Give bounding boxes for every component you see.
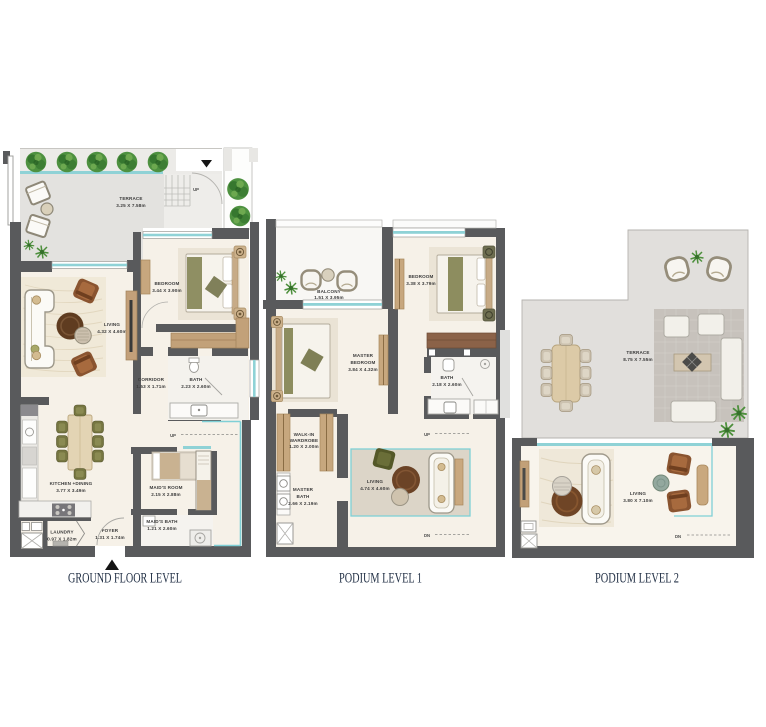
svg-text:KITCHEN +DINING: KITCHEN +DINING	[50, 481, 93, 486]
svg-text:DN: DN	[424, 533, 430, 538]
svg-text:3.44 X 3.90m: 3.44 X 3.90m	[152, 288, 181, 293]
svg-text:3.25 X 7.58m: 3.25 X 7.58m	[116, 203, 145, 208]
svg-text:1.20 X 2.00m: 1.20 X 2.00m	[289, 444, 318, 449]
svg-text:MASTER: MASTER	[353, 353, 374, 358]
svg-text:LIVING: LIVING	[630, 491, 646, 496]
svg-text:GROUND FLOOR LEVEL: GROUND FLOOR LEVEL	[68, 571, 182, 587]
svg-text:BEDROOM: BEDROOM	[408, 274, 433, 279]
svg-text:3.38 X 3.79m: 3.38 X 3.79m	[406, 281, 435, 286]
svg-text:UP: UP	[170, 433, 176, 438]
svg-text:4.74 X 4.60m: 4.74 X 4.60m	[360, 486, 389, 491]
svg-text:BATH: BATH	[440, 375, 454, 380]
svg-text:BATH: BATH	[189, 377, 203, 382]
svg-text:FOYER: FOYER	[102, 528, 119, 533]
svg-text:2.15 X 2.88m: 2.15 X 2.88m	[151, 492, 180, 497]
svg-text:3.80 X 7.10m: 3.80 X 7.10m	[623, 498, 652, 503]
svg-text:MASTER: MASTER	[293, 487, 314, 492]
svg-text:1.21 X 2.60m: 1.21 X 2.60m	[147, 526, 176, 531]
svg-text:1.53 X 1.71m: 1.53 X 1.71m	[136, 384, 165, 389]
svg-text:PODIUM LEVEL 1: PODIUM LEVEL 1	[339, 571, 422, 587]
svg-text:BALCONY: BALCONY	[317, 289, 341, 294]
svg-text:TERRACE: TERRACE	[119, 196, 142, 201]
svg-text:3.84 X 4.32m: 3.84 X 4.32m	[348, 367, 377, 372]
svg-text:BEDROOM: BEDROOM	[154, 281, 179, 286]
svg-text:2.66 X 2.19m: 2.66 X 2.19m	[288, 501, 317, 506]
svg-text:UP: UP	[193, 187, 199, 192]
svg-text:8.75 X 7.55m: 8.75 X 7.55m	[623, 357, 652, 362]
svg-text:DN: DN	[675, 534, 681, 539]
svg-text:CORRIDOR: CORRIDOR	[138, 377, 165, 382]
svg-text:LIVING: LIVING	[104, 322, 120, 327]
svg-text:MAID'S ROOM: MAID'S ROOM	[149, 485, 182, 490]
svg-text:BATH: BATH	[296, 494, 310, 499]
svg-text:WALK-IN: WALK-IN	[294, 432, 315, 437]
svg-text:TERRACE: TERRACE	[626, 350, 649, 355]
svg-text:1.51 X 3.95m: 1.51 X 3.95m	[314, 295, 343, 300]
svg-text:LAUNDRY: LAUNDRY	[50, 530, 73, 535]
svg-text:MAID'S BATH: MAID'S BATH	[146, 519, 178, 524]
svg-text:BEDROOM: BEDROOM	[350, 360, 375, 365]
svg-text:2.18 X 2.60m: 2.18 X 2.60m	[432, 382, 461, 387]
svg-text:UP: UP	[424, 432, 430, 437]
svg-text:4.32 X 4.60m: 4.32 X 4.60m	[97, 329, 126, 334]
svg-text:PODIUM LEVEL 2: PODIUM LEVEL 2	[595, 571, 679, 587]
svg-text:WARDROBE: WARDROBE	[290, 438, 319, 443]
svg-text:1.31 X 1.74m: 1.31 X 1.74m	[95, 535, 124, 540]
svg-text:LIVING: LIVING	[367, 479, 383, 484]
svg-text:2.23 X 2.60m: 2.23 X 2.60m	[181, 384, 210, 389]
svg-text:3.77 X 3.49m: 3.77 X 3.49m	[56, 488, 85, 493]
svg-text:0.97 X 1.82m: 0.97 X 1.82m	[47, 537, 76, 542]
